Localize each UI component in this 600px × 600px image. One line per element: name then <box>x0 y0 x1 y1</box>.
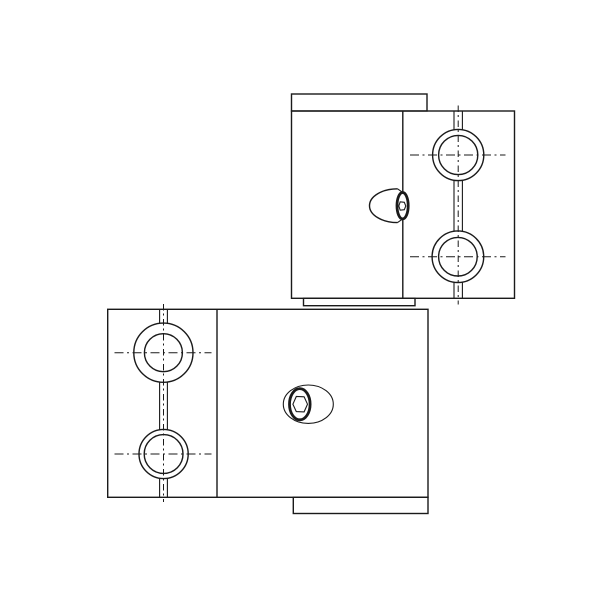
upper-clamp-block <box>292 94 515 306</box>
top-boss-outline <box>292 94 428 111</box>
lower-clamp-block <box>108 304 428 514</box>
technical-drawing <box>0 0 600 600</box>
bottom-boss-outline <box>293 497 428 513</box>
drawing-canvas <box>0 0 600 600</box>
bottom-boss-outline <box>304 298 416 305</box>
block-outline <box>108 309 428 497</box>
screw-head-dome <box>370 189 398 223</box>
